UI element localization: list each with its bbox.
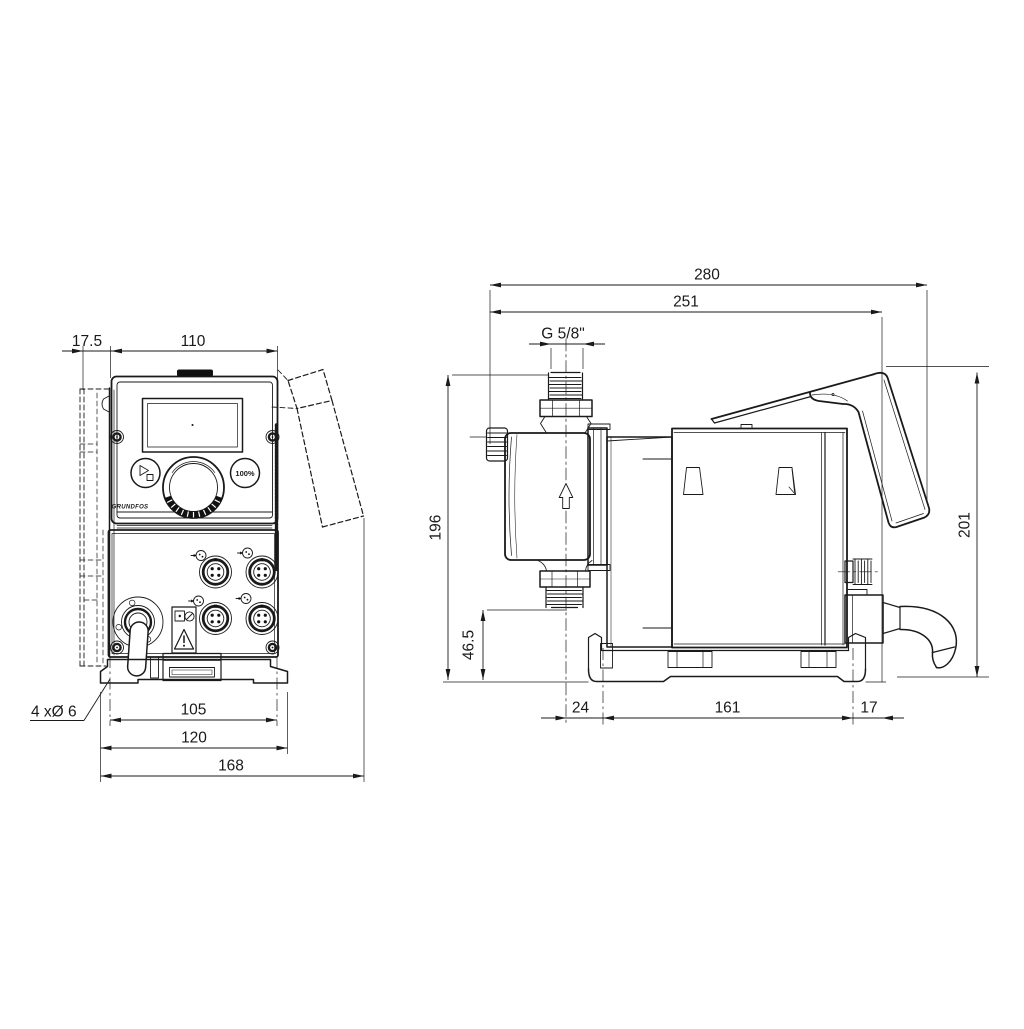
housing-screw-right	[266, 641, 279, 654]
m12-connector-2	[246, 556, 278, 588]
drawing-page: 100% GRUNDFOS	[0, 0, 1024, 1024]
housing-screw-left	[111, 641, 124, 654]
dim-161: 161	[715, 700, 741, 717]
connection-housing	[109, 530, 280, 677]
hood-side	[712, 373, 930, 527]
warning-label	[172, 607, 196, 653]
stop-icon	[147, 475, 153, 481]
vent-clip-1	[684, 468, 704, 495]
head-body	[505, 433, 590, 560]
suction-valve	[538, 561, 592, 608]
side-view: 280 251 G 5/8" 196 46.5 201 24 161 17	[428, 267, 990, 727]
mains-cable-outer	[900, 606, 956, 667]
dim-120: 120	[181, 730, 207, 747]
rotary-knob	[163, 457, 224, 518]
dim-105: 105	[181, 702, 207, 719]
dimensions-side: 280 251 G 5/8" 196 46.5 201 24 161 17	[428, 267, 990, 727]
power-cable-flange	[113, 597, 163, 677]
front-view: 100% GRUNDFOS	[30, 333, 364, 782]
dim-thread: G 5/8"	[541, 326, 584, 343]
m12-connector-1	[200, 556, 232, 588]
connector-icon-3	[189, 596, 204, 606]
cable-gland	[838, 559, 956, 668]
control-panel: 100% GRUNDFOS	[111, 370, 280, 529]
panel-screw-left	[111, 431, 124, 444]
hundred-percent-label: 100%	[235, 469, 255, 478]
dim-196: 196	[428, 515, 445, 541]
dim-201: 201	[957, 512, 974, 538]
display	[143, 399, 243, 453]
m12-connector-4	[246, 603, 278, 635]
vent-clip-2	[776, 468, 796, 495]
panel-top-tab	[177, 370, 213, 377]
connector-icon-4	[236, 594, 251, 604]
power-cable	[127, 621, 149, 676]
dim-251: 251	[673, 294, 699, 311]
flow-direction-arrow	[559, 484, 573, 509]
m12-connector-3	[200, 603, 232, 635]
mains-cable-inner	[900, 629, 933, 652]
base-plate	[443, 634, 886, 683]
wall-plate	[80, 389, 109, 666]
dim-168: 168	[218, 758, 244, 775]
play-icon	[140, 466, 149, 476]
motor-adapter	[607, 437, 672, 647]
grundfos-logo: GRUNDFOS	[112, 505, 149, 511]
connector-icon-1	[191, 551, 206, 561]
dim-17-5: 17.5	[72, 333, 102, 350]
hundred-percent-button: 100%	[231, 459, 260, 488]
note-mounting-holes: 4 xØ 6	[31, 704, 77, 721]
dim-17: 17	[860, 700, 877, 717]
dim-24: 24	[572, 700, 590, 717]
start-stop-button	[131, 459, 160, 488]
discharge-valve	[540, 373, 592, 434]
connector-icon-2	[238, 548, 253, 558]
dim-110: 110	[181, 333, 206, 350]
pump-body	[607, 425, 847, 648]
dim-280: 280	[694, 267, 720, 284]
technical-drawing: 100% GRUNDFOS	[0, 0, 1024, 1024]
dim-46-5: 46.5	[461, 630, 478, 660]
control-box	[672, 429, 847, 648]
hood-open-dashed	[272, 370, 364, 528]
